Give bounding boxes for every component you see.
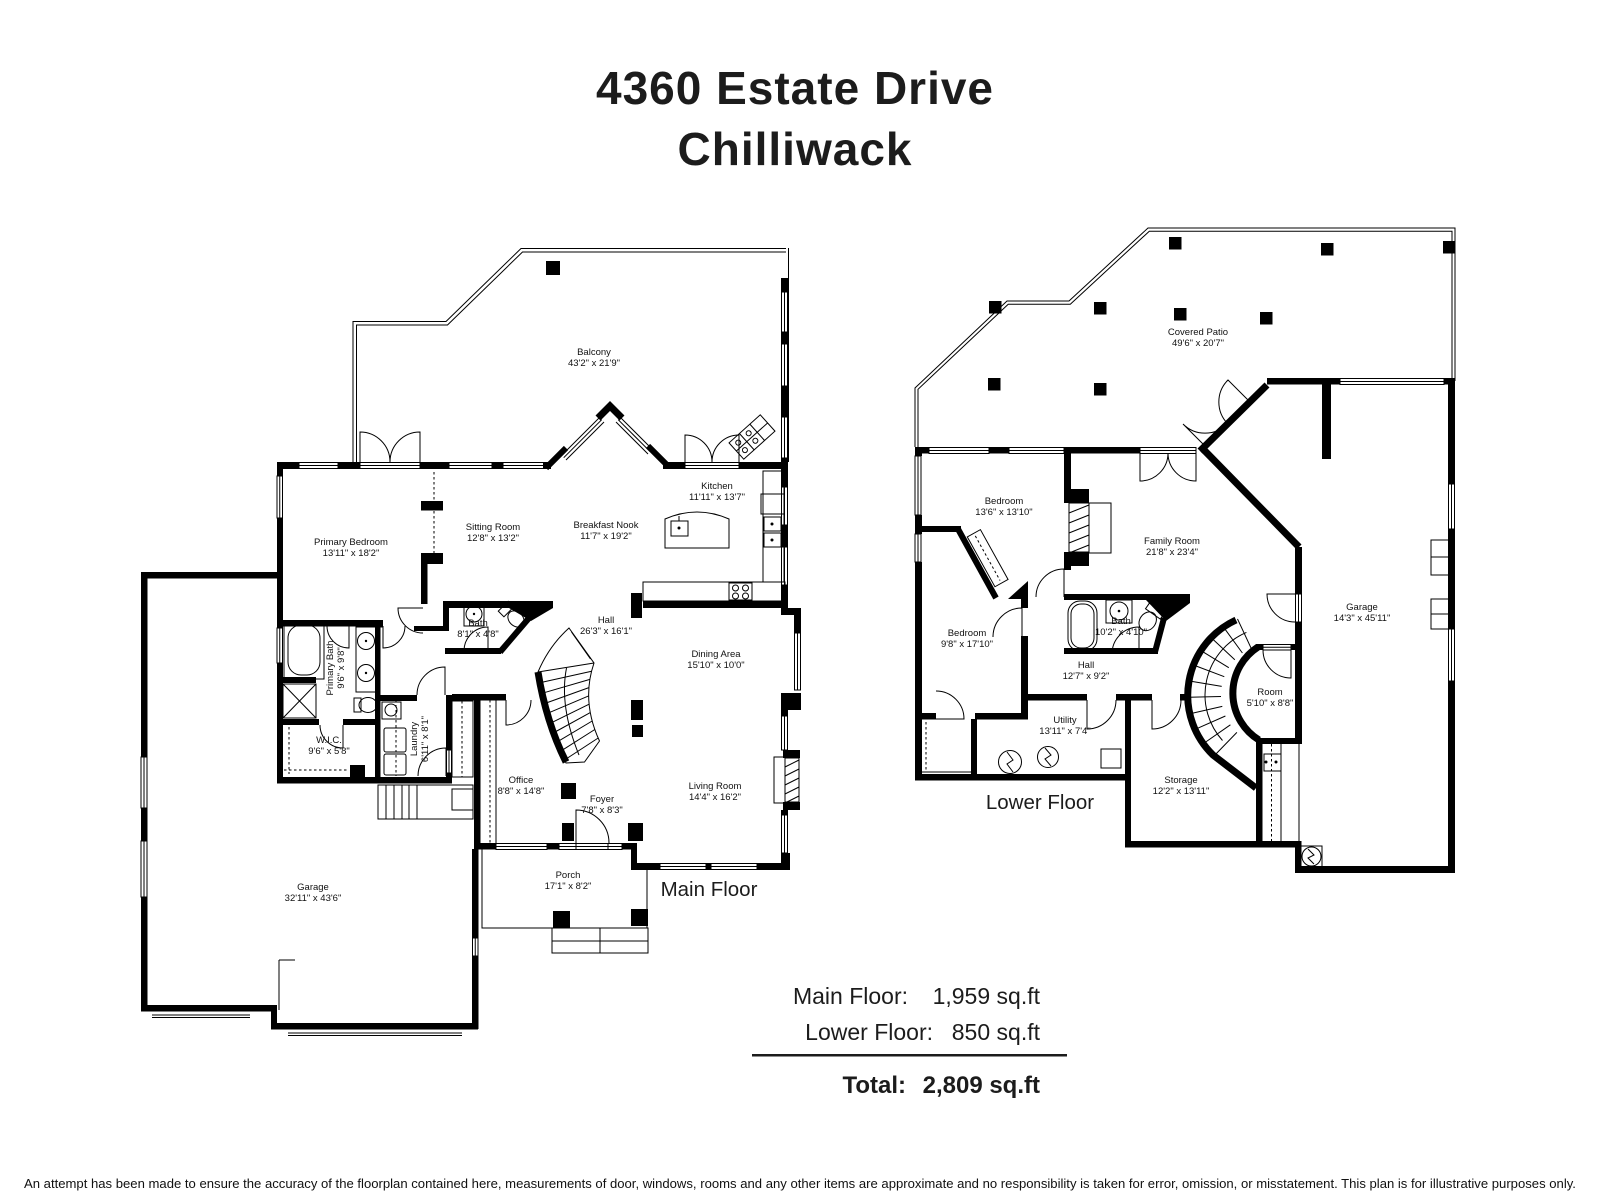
svg-text:Bedroom: Bedroom <box>985 496 1024 507</box>
svg-text:12'7" x 9'2": 12'7" x 9'2" <box>1063 671 1110 682</box>
svg-text:49'6" x 20'7": 49'6" x 20'7" <box>1172 338 1224 349</box>
svg-text:Living Room: Living Room <box>689 781 742 792</box>
svg-text:15'10" x 10'0": 15'10" x 10'0" <box>687 660 744 671</box>
svg-text:11'7" x 19'2": 11'7" x 19'2" <box>580 531 631 542</box>
svg-text:An attempt has been made to en: An attempt has been made to ensure the a… <box>24 1176 1576 1191</box>
svg-text:Sitting Room: Sitting Room <box>466 522 520 533</box>
svg-text:Main Floor: Main Floor <box>661 878 758 901</box>
svg-text:Hall: Hall <box>598 615 614 626</box>
svg-text:Bedroom: Bedroom <box>948 628 987 639</box>
svg-text:Primary Bath: Primary Bath <box>325 641 336 696</box>
svg-text:8'8" x 14'8": 8'8" x 14'8" <box>498 786 545 797</box>
svg-text:6'11" x 8'1": 6'11" x 8'1" <box>420 716 431 762</box>
svg-text:Balcony: Balcony <box>577 347 611 358</box>
svg-text:Lower Floor: Lower Floor <box>986 791 1094 814</box>
svg-text:Bath: Bath <box>1111 616 1131 627</box>
svg-text:Breakfast Nook: Breakfast Nook <box>574 520 639 531</box>
svg-text:7'8" x 8'3": 7'8" x 8'3" <box>581 805 623 816</box>
svg-text:Lower Floor:850 sq.ft: Lower Floor:850 sq.ft <box>805 1019 1040 1045</box>
svg-text:Room: Room <box>1257 687 1282 698</box>
svg-text:8'1" x 4'8": 8'1" x 4'8" <box>457 629 499 640</box>
svg-text:11'11" x 13'7": 11'11" x 13'7" <box>689 492 745 503</box>
svg-text:13'11" x 7'4": 13'11" x 7'4" <box>1039 726 1090 737</box>
svg-text:4360 Estate Drive: 4360 Estate Drive <box>596 62 994 114</box>
svg-text:Primary Bedroom: Primary Bedroom <box>314 537 388 548</box>
svg-text:32'11" x 43'6": 32'11" x 43'6" <box>285 893 342 904</box>
svg-text:Dining Area: Dining Area <box>691 649 741 660</box>
svg-text:14'3" x 45'11": 14'3" x 45'11" <box>1334 613 1391 624</box>
svg-text:Family Room: Family Room <box>1144 536 1200 547</box>
svg-text:13'11" x 18'2": 13'11" x 18'2" <box>323 548 380 559</box>
svg-text:Chilliwack: Chilliwack <box>678 123 913 175</box>
svg-text:Laundry: Laundry <box>409 722 420 757</box>
svg-text:Total:2,809 sq.ft: Total:2,809 sq.ft <box>842 1072 1040 1099</box>
svg-text:13'6" x 13'10": 13'6" x 13'10" <box>975 507 1032 518</box>
svg-text:12'2" x 13'11": 12'2" x 13'11" <box>1153 786 1210 797</box>
svg-text:21'8" x 23'4": 21'8" x 23'4" <box>1146 547 1198 558</box>
svg-text:Foyer: Foyer <box>590 794 614 805</box>
svg-text:9'6" x 5'8": 9'6" x 5'8" <box>308 746 350 757</box>
svg-text:26'3" x 16'1": 26'3" x 16'1" <box>580 626 632 637</box>
svg-text:Utility: Utility <box>1053 715 1076 726</box>
svg-text:Porch: Porch <box>556 870 581 881</box>
svg-text:43'2" x 21'9": 43'2" x 21'9" <box>568 358 620 369</box>
svg-text:Hall: Hall <box>1078 660 1094 671</box>
svg-text:Office: Office <box>509 775 534 786</box>
svg-text:Kitchen: Kitchen <box>701 481 733 492</box>
svg-text:Covered Patio: Covered Patio <box>1168 327 1228 338</box>
svg-text:12'8" x 13'2": 12'8" x 13'2" <box>467 533 519 544</box>
svg-text:W.I.C.: W.I.C. <box>316 735 342 746</box>
svg-text:5'10" x 8'8": 5'10" x 8'8" <box>1247 698 1294 709</box>
svg-text:9'6" x 9'8": 9'6" x 9'8" <box>336 647 347 689</box>
svg-text:9'8" x 17'10": 9'8" x 17'10" <box>941 639 993 650</box>
svg-text:14'4" x 16'2": 14'4" x 16'2" <box>689 792 741 803</box>
svg-text:Garage: Garage <box>297 882 329 893</box>
svg-text:Storage: Storage <box>1164 775 1197 786</box>
svg-text:Garage: Garage <box>1346 602 1378 613</box>
svg-text:17'1" x 8'2": 17'1" x 8'2" <box>545 881 592 892</box>
